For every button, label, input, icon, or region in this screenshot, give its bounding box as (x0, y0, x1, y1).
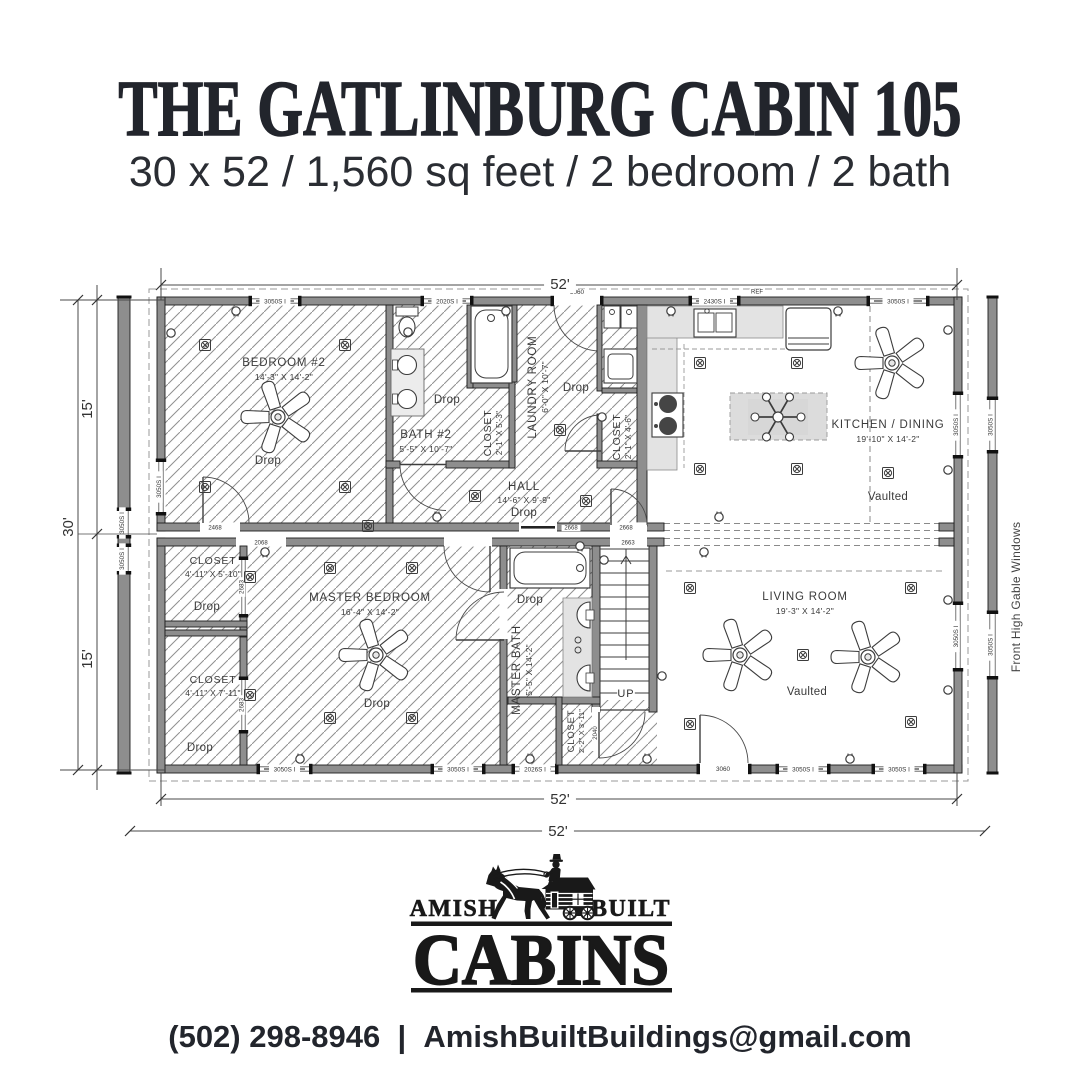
svg-text:CLOSET: CLOSET (611, 414, 623, 461)
svg-text:3050S I: 3050S I (988, 634, 995, 656)
svg-text:3050S I: 3050S I (953, 414, 960, 436)
svg-text:Drop: Drop (255, 455, 281, 467)
svg-text:3050S I: 3050S I (792, 766, 814, 773)
svg-text:3050S I: 3050S I (119, 548, 126, 570)
svg-text:14'-3" X 14'-2": 14'-3" X 14'-2" (255, 372, 313, 382)
svg-text:Drop: Drop (194, 601, 220, 613)
svg-text:52': 52' (550, 791, 570, 808)
svg-text:3050S I: 3050S I (887, 298, 909, 305)
svg-text:3060: 3060 (716, 766, 731, 773)
svg-text:AMISH: AMISH (410, 896, 499, 922)
svg-text:2'-1" X 4'-6": 2'-1" X 4'-6" (624, 415, 633, 459)
svg-text:BUILT: BUILT (591, 896, 671, 922)
svg-text:CLOSET: CLOSET (566, 710, 577, 753)
svg-text:LAUNDRY ROOM: LAUNDRY ROOM (527, 335, 539, 438)
svg-text:16'-4" X 14'-2": 16'-4" X 14'-2" (341, 607, 399, 617)
svg-text:Drop: Drop (517, 594, 543, 606)
svg-text:Drop: Drop (434, 394, 460, 406)
svg-text:5'-5" X 14'-2": 5'-5" X 14'-2" (524, 644, 534, 696)
svg-text:2026S I: 2026S I (524, 766, 546, 773)
svg-text:Drop: Drop (511, 507, 537, 519)
svg-text:3050S I: 3050S I (274, 766, 296, 773)
svg-text:15': 15' (79, 649, 96, 669)
svg-text:CLOSET: CLOSET (482, 410, 494, 457)
svg-text:Front High Gable Windows: Front High Gable Windows (1009, 522, 1023, 673)
svg-text:19'-10" X 14'-2": 19'-10" X 14'-2" (856, 434, 919, 444)
svg-text:MASTER BEDROOM: MASTER BEDROOM (309, 592, 431, 604)
svg-text:4'-11" X 5'-10": 4'-11" X 5'-10" (185, 569, 241, 579)
svg-text:3050S I: 3050S I (888, 766, 910, 773)
svg-text:CLOSET: CLOSET (190, 555, 237, 567)
svg-text:3050S I: 3050S I (156, 476, 163, 498)
svg-text:2430S I: 2430S I (704, 298, 726, 305)
svg-text:52': 52' (550, 276, 570, 293)
svg-text:Drop: Drop (364, 698, 390, 710)
svg-text:52': 52' (548, 823, 568, 840)
svg-text:30': 30' (60, 517, 77, 537)
svg-text:2040: 2040 (593, 726, 599, 740)
svg-text:15': 15' (79, 399, 96, 419)
svg-text:14'-6" X 9'-9": 14'-6" X 9'-9" (497, 495, 550, 505)
svg-text:KITCHEN / DINING: KITCHEN / DINING (831, 419, 944, 431)
svg-text:Drop: Drop (187, 742, 213, 754)
svg-text:2020S I: 2020S I (436, 298, 458, 305)
svg-text:3050S I: 3050S I (953, 625, 960, 647)
svg-text:19'-3" X 14'-2": 19'-3" X 14'-2" (776, 606, 834, 616)
svg-text:2663: 2663 (621, 541, 635, 547)
svg-text:2068: 2068 (254, 541, 268, 547)
svg-text:LIVING ROOM: LIVING ROOM (762, 591, 847, 603)
svg-text:BEDROOM #2: BEDROOM #2 (242, 357, 325, 369)
svg-text:2'-1" X 5'-3": 2'-1" X 5'-3" (495, 411, 504, 455)
svg-text:HALL: HALL (508, 481, 540, 493)
svg-text:5'-5" X 10'-7": 5'-5" X 10'-7" (399, 444, 452, 454)
svg-text:Vaulted: Vaulted (868, 491, 908, 503)
svg-text:3050S I: 3050S I (264, 298, 286, 305)
svg-text:CLOSET: CLOSET (190, 674, 237, 686)
svg-text:Vaulted: Vaulted (787, 686, 827, 698)
svg-text:3050S I: 3050S I (119, 512, 126, 534)
svg-text:2'-2" X 3'-11": 2'-2" X 3'-11" (577, 709, 586, 753)
svg-text:2668: 2668 (619, 526, 633, 532)
svg-text:Drop: Drop (563, 382, 589, 394)
svg-text:6'-0" X 10'-7": 6'-0" X 10'-7" (540, 361, 550, 413)
svg-text:2468: 2468 (208, 526, 222, 532)
svg-text:4'-11" X 7'-11": 4'-11" X 7'-11" (185, 688, 240, 698)
svg-text:BATH #2: BATH #2 (400, 429, 451, 441)
svg-text:UP: UP (617, 688, 634, 700)
svg-text:2668: 2668 (564, 526, 578, 532)
svg-text:MASTER BATH: MASTER BATH (511, 625, 523, 715)
svg-text:3050S I: 3050S I (447, 766, 469, 773)
svg-text:3050S I: 3050S I (988, 414, 995, 436)
svg-text:REF: REF (751, 290, 763, 296)
